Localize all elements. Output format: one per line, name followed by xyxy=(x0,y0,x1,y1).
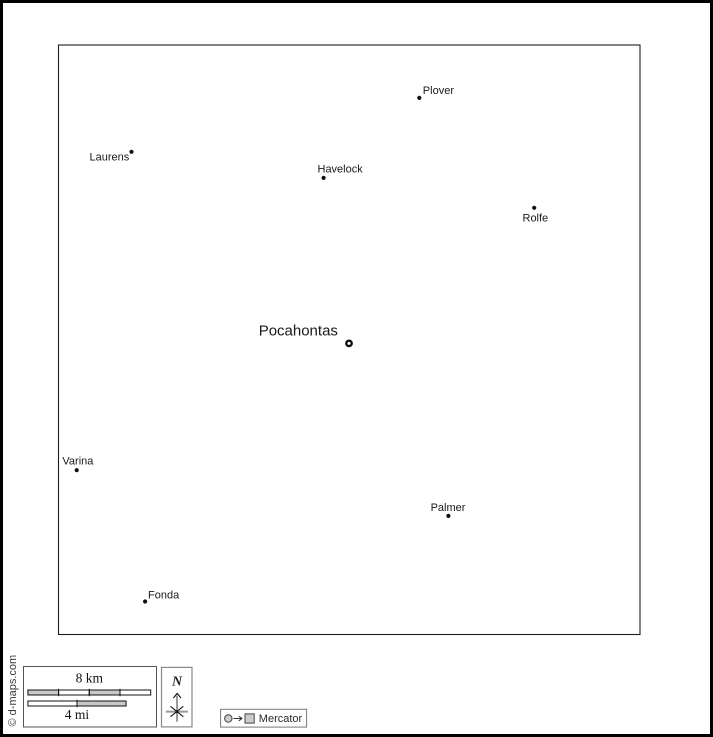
svg-text:N: N xyxy=(171,675,183,690)
svg-text:8 km: 8 km xyxy=(76,671,104,686)
svg-text:Palmer: Palmer xyxy=(431,502,466,514)
svg-text:© d-maps.com: © d-maps.com xyxy=(7,655,19,727)
svg-text:Plover: Plover xyxy=(423,85,455,97)
svg-text:Varina: Varina xyxy=(62,456,94,468)
svg-text:Mercator: Mercator xyxy=(259,713,303,725)
svg-text:Rolfe: Rolfe xyxy=(523,213,549,225)
svg-text:Laurens: Laurens xyxy=(90,151,130,163)
svg-text:Fonda: Fonda xyxy=(148,590,180,602)
svg-text:4 mi: 4 mi xyxy=(65,707,90,722)
svg-text:Havelock: Havelock xyxy=(318,164,364,176)
svg-text:Pocahontas: Pocahontas xyxy=(259,323,338,340)
